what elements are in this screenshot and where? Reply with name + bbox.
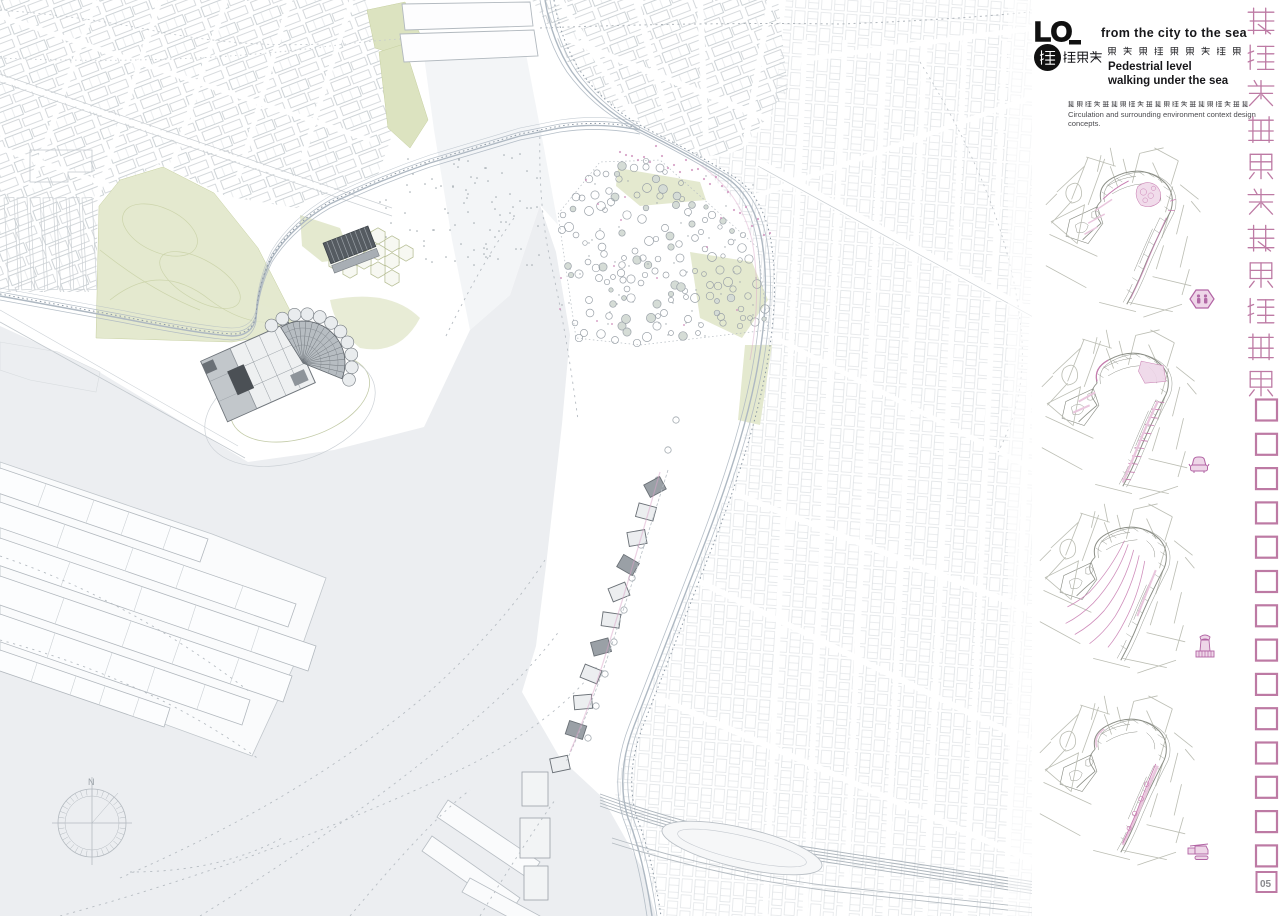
svg-text:Pedestrial level: Pedestrial level bbox=[1108, 61, 1192, 73]
svg-text:LO: LO bbox=[1034, 16, 1072, 47]
svg-text:N: N bbox=[88, 777, 95, 787]
svg-text:Circulation and surrounding en: Circulation and surrounding environment … bbox=[1068, 110, 1256, 119]
svg-text:walking under the sea: walking under the sea bbox=[1107, 75, 1229, 87]
svg-text:concepts.: concepts. bbox=[1068, 119, 1101, 128]
svg-text:05: 05 bbox=[1260, 879, 1272, 890]
svg-text:from the city to the sea: from the city to the sea bbox=[1101, 25, 1247, 40]
